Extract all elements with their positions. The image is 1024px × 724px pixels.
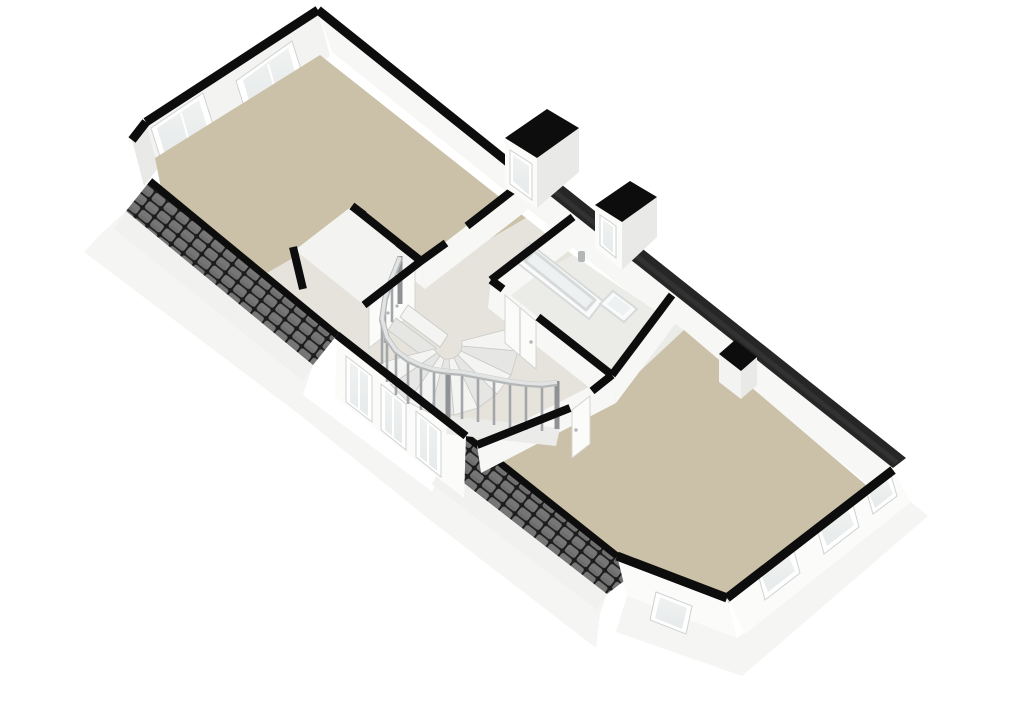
tub-faucet — [578, 251, 585, 262]
floorplan-canvas — [0, 0, 1024, 724]
floorplan-3d-render — [0, 0, 1024, 724]
